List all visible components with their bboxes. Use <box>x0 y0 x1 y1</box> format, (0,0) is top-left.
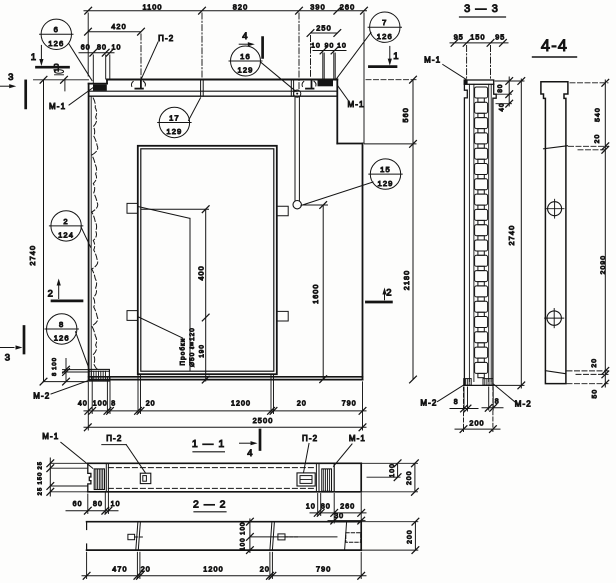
svg-text:25: 25 <box>38 487 44 496</box>
svg-text:М-2: М-2 <box>515 399 532 408</box>
svg-text:540: 540 <box>594 107 601 122</box>
svg-text:90: 90 <box>325 42 335 49</box>
svg-text:7: 7 <box>382 18 387 27</box>
svg-text:М-2: М-2 <box>33 392 50 401</box>
svg-text:6: 6 <box>54 25 59 34</box>
svg-text:80: 80 <box>97 44 107 51</box>
svg-text:М-1: М-1 <box>347 100 364 109</box>
svg-text:200: 200 <box>407 529 414 544</box>
svg-text:470: 470 <box>112 565 127 574</box>
svg-text:126: 126 <box>48 39 64 48</box>
svg-text:8: 8 <box>52 372 58 376</box>
svg-text:390: 390 <box>310 3 325 12</box>
svg-text:8: 8 <box>454 399 459 406</box>
svg-text:100: 100 <box>240 522 246 535</box>
svg-text:20: 20 <box>260 565 270 574</box>
svg-text:124: 124 <box>58 231 74 240</box>
svg-text:М-2: М-2 <box>420 398 437 407</box>
svg-text:4: 4 <box>247 448 253 459</box>
svg-text:80: 80 <box>497 84 504 93</box>
svg-text:100: 100 <box>93 401 108 408</box>
svg-text:2740: 2740 <box>507 225 516 246</box>
svg-text:20: 20 <box>141 565 151 574</box>
svg-text:790: 790 <box>342 401 357 408</box>
svg-text:95: 95 <box>495 33 505 42</box>
svg-text:4-4: 4-4 <box>541 37 568 55</box>
svg-text:420: 420 <box>111 22 126 31</box>
svg-text:М-1: М-1 <box>424 55 441 64</box>
svg-text:8: 8 <box>59 320 64 329</box>
svg-text:10: 10 <box>306 503 316 510</box>
svg-text:100: 100 <box>240 537 246 550</box>
svg-text:400: 400 <box>196 265 205 280</box>
svg-text:790: 790 <box>316 565 331 574</box>
svg-text:20: 20 <box>591 358 598 368</box>
svg-text:1100: 1100 <box>142 3 162 12</box>
svg-text:2090: 2090 <box>600 255 607 275</box>
svg-text:60: 60 <box>81 44 91 51</box>
svg-text:10: 10 <box>53 62 60 71</box>
svg-text:2180: 2180 <box>402 270 411 290</box>
svg-text:50: 50 <box>591 389 598 399</box>
svg-text:П-2: П-2 <box>302 434 318 443</box>
svg-text:1200: 1200 <box>231 401 251 408</box>
svg-text:80: 80 <box>321 503 331 510</box>
svg-text:10: 10 <box>311 42 321 49</box>
svg-text:1600: 1600 <box>311 284 320 304</box>
svg-text:150: 150 <box>470 32 485 41</box>
svg-text:190: 190 <box>198 344 205 358</box>
svg-text:150: 150 <box>38 472 44 485</box>
svg-text:10: 10 <box>111 501 121 508</box>
svg-text:20: 20 <box>594 134 601 144</box>
svg-text:2: 2 <box>63 217 68 226</box>
svg-text:100: 100 <box>389 463 396 478</box>
svg-text:1: 1 <box>31 52 37 63</box>
svg-text:3: 3 <box>8 72 14 83</box>
svg-text:30: 30 <box>334 513 344 520</box>
svg-text:М-1: М-1 <box>349 434 366 443</box>
svg-text:П-2: П-2 <box>106 434 122 443</box>
svg-text:250: 250 <box>316 23 331 32</box>
svg-text:820: 820 <box>233 3 248 12</box>
svg-text:126: 126 <box>54 334 70 343</box>
svg-text:8: 8 <box>111 401 116 408</box>
svg-text:2 — 2: 2 — 2 <box>193 498 227 510</box>
svg-text:Ø50 ℓ=120: Ø50 ℓ=120 <box>189 327 196 367</box>
svg-text:40: 40 <box>78 401 88 408</box>
svg-text:126: 126 <box>377 32 393 41</box>
svg-text:260: 260 <box>340 3 355 12</box>
svg-text:М-1: М-1 <box>49 102 66 111</box>
svg-text:4: 4 <box>242 31 248 42</box>
svg-text:16: 16 <box>240 52 251 61</box>
svg-text:60: 60 <box>73 501 83 508</box>
svg-text:10: 10 <box>337 42 347 49</box>
svg-text:2740: 2740 <box>28 245 37 266</box>
svg-text:2: 2 <box>386 288 392 299</box>
svg-text:560: 560 <box>401 107 410 122</box>
svg-text:П-2: П-2 <box>158 34 174 43</box>
svg-text:3 — 3: 3 — 3 <box>464 3 499 15</box>
svg-text:20: 20 <box>146 401 156 408</box>
svg-text:20: 20 <box>297 401 307 408</box>
svg-text:Пробки: Пробки <box>178 337 186 365</box>
svg-text:10: 10 <box>112 44 122 51</box>
svg-text:1: 1 <box>393 51 399 62</box>
svg-text:80: 80 <box>93 501 103 508</box>
svg-text:40: 40 <box>499 102 506 111</box>
svg-text:129: 129 <box>238 66 254 75</box>
svg-text:2500: 2500 <box>253 416 274 425</box>
svg-text:17: 17 <box>169 113 180 122</box>
svg-text:260: 260 <box>340 503 355 510</box>
svg-text:15: 15 <box>380 165 391 174</box>
svg-text:1200: 1200 <box>203 565 223 574</box>
svg-text:200: 200 <box>406 470 413 485</box>
svg-text:1 — 1: 1 — 1 <box>192 438 226 450</box>
svg-text:100: 100 <box>52 357 58 370</box>
svg-text:М-1: М-1 <box>42 432 59 441</box>
svg-text:2: 2 <box>48 289 54 300</box>
svg-text:95: 95 <box>454 32 464 41</box>
svg-text:129: 129 <box>378 179 394 188</box>
svg-text:25: 25 <box>38 461 44 470</box>
svg-text:200: 200 <box>469 419 484 428</box>
svg-text:3: 3 <box>5 352 11 363</box>
svg-text:129: 129 <box>166 127 182 136</box>
